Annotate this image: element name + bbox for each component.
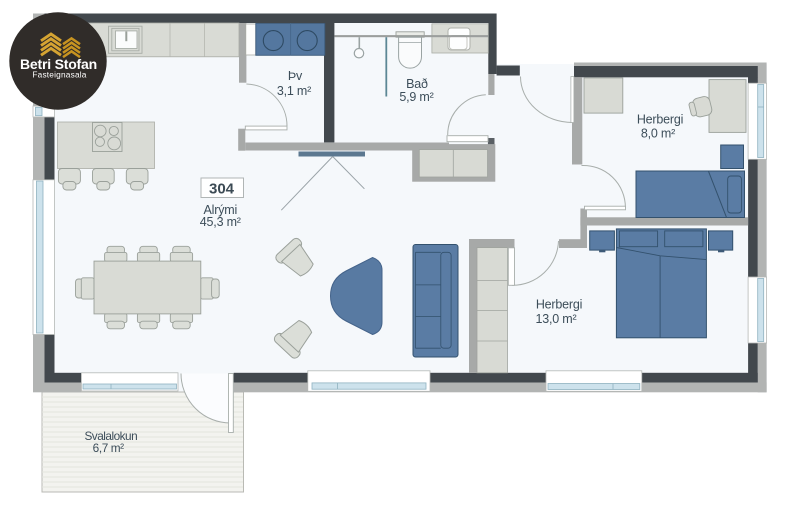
svg-text:5,9 m²: 5,9 m² (399, 90, 433, 104)
svg-text:3,1 m²: 3,1 m² (277, 84, 311, 98)
svg-text:Herbergi: Herbergi (536, 297, 582, 311)
svg-text:Bað: Bað (406, 77, 428, 91)
svg-text:45,3 m²: 45,3 m² (200, 215, 241, 229)
svg-text:6,7 m²: 6,7 m² (93, 441, 125, 455)
svg-text:8,0 m²: 8,0 m² (641, 126, 675, 140)
svg-text:Þv: Þv (288, 69, 303, 83)
svg-text:Herbergi: Herbergi (637, 112, 683, 126)
svg-text:304: 304 (209, 181, 235, 198)
svg-text:Fasteignasala: Fasteignasala (32, 70, 86, 80)
svg-text:13,0 m²: 13,0 m² (536, 312, 577, 326)
